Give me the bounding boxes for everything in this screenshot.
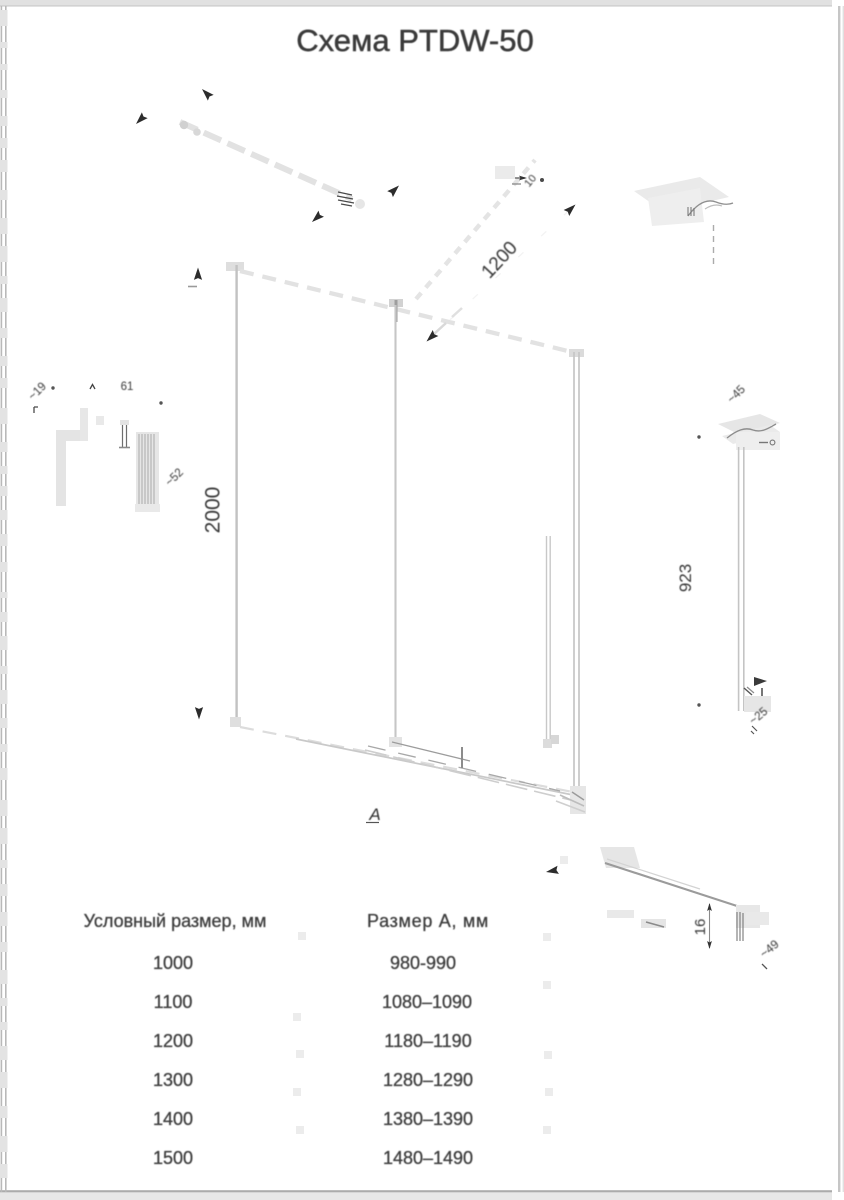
- svg-text:1200: 1200: [153, 1031, 193, 1051]
- svg-text:1280–1290: 1280–1290: [383, 1070, 473, 1090]
- svg-text:1400: 1400: [153, 1109, 193, 1129]
- svg-text:1180–1190: 1180–1190: [384, 1031, 471, 1051]
- svg-text:1500: 1500: [153, 1148, 193, 1168]
- svg-text:1100: 1100: [154, 992, 193, 1012]
- svg-text:1080–1090: 1080–1090: [382, 992, 472, 1012]
- svg-text:980-990: 980-990: [390, 953, 456, 973]
- svg-text:1300: 1300: [153, 1070, 193, 1090]
- svg-text:923: 923: [676, 564, 695, 592]
- svg-text:2000: 2000: [202, 487, 225, 534]
- svg-text:Схема PTDW-50: Схема PTDW-50: [296, 23, 533, 58]
- svg-text:1000: 1000: [153, 953, 193, 973]
- svg-text:Размер А, мм: Размер А, мм: [367, 911, 489, 931]
- svg-text:61: 61: [121, 381, 134, 393]
- svg-text:16: 16: [692, 919, 709, 936]
- svg-text:Условный размер, мм: Условный размер, мм: [84, 911, 267, 931]
- svg-text:1480–1490: 1480–1490: [383, 1148, 473, 1168]
- svg-text:А: А: [368, 805, 380, 824]
- svg-text:1380–1390: 1380–1390: [383, 1109, 473, 1129]
